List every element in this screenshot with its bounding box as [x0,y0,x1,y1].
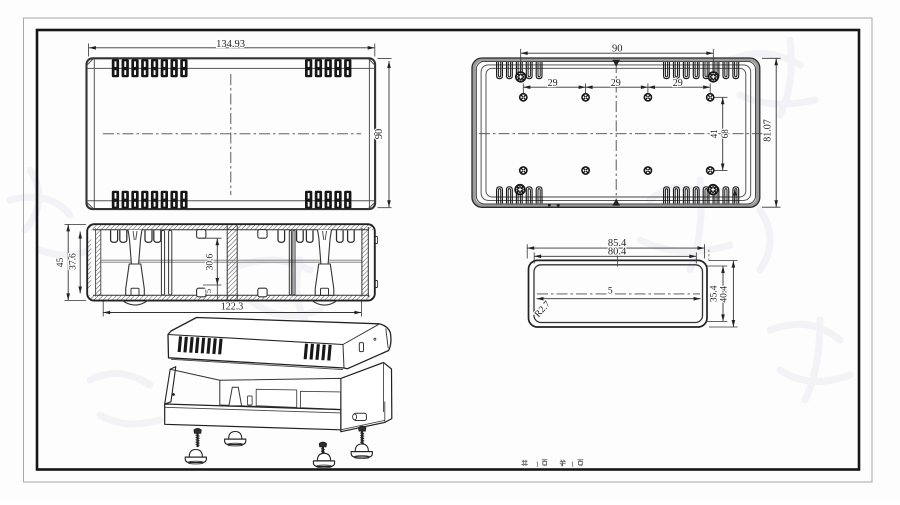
svg-text:122.3: 122.3 [221,302,244,313]
svg-text:80.4: 80.4 [608,246,627,257]
svg-text:68: 68 [720,129,730,139]
svg-text:81.07: 81.07 [763,119,774,142]
svg-text:37.6: 37.6 [68,253,78,270]
svg-text:30.6: 30.6 [206,253,216,270]
svg-text:90: 90 [612,43,623,54]
svg-text:45: 45 [56,258,66,268]
svg-text:29: 29 [611,78,621,89]
svg-text:90: 90 [374,129,385,140]
svg-text:5: 5 [203,289,213,293]
svg-text:29: 29 [673,78,683,89]
svg-text:5: 5 [608,286,613,296]
svg-text:1: 1 [535,460,539,469]
svg-text:35.4: 35.4 [709,285,719,302]
svg-text:40.4: 40.4 [720,286,730,303]
svg-text:29: 29 [548,78,558,89]
svg-text:134.93: 134.93 [216,39,245,50]
svg-text:1: 1 [571,460,575,469]
svg-text:41: 41 [709,129,719,138]
